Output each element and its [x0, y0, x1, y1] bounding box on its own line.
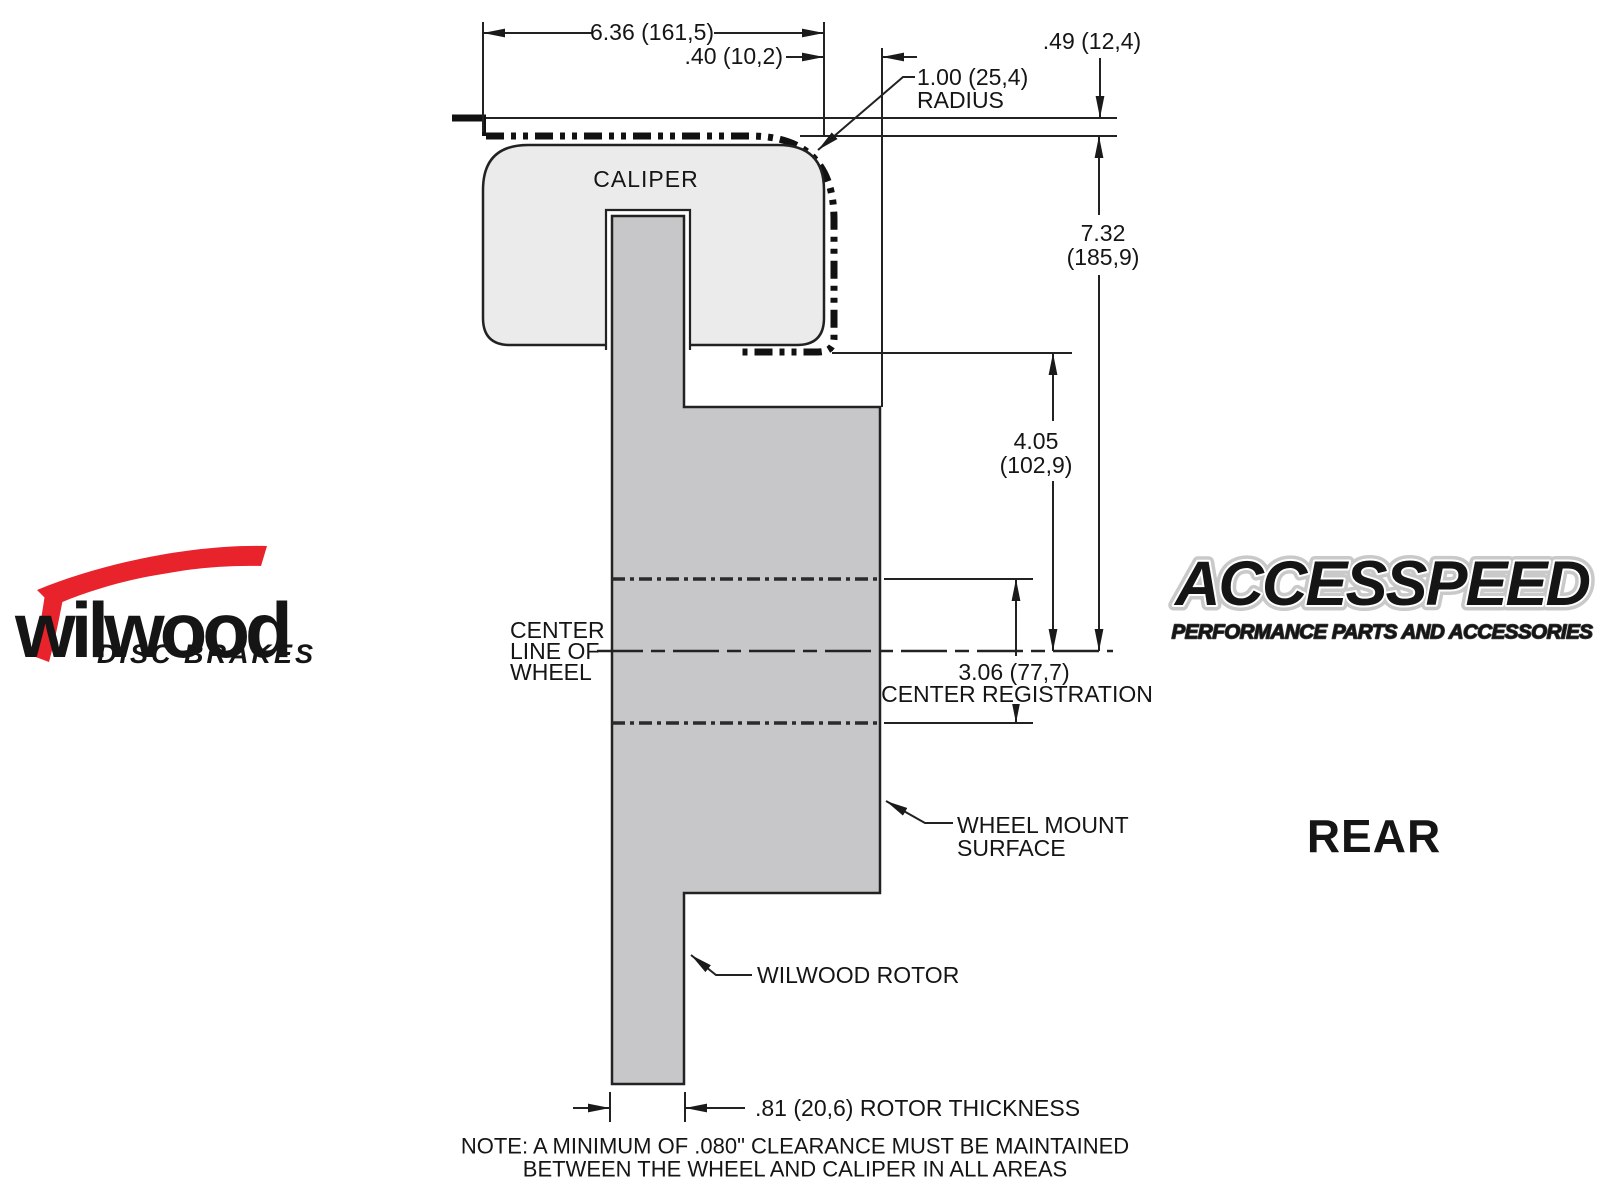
note-text-line1: NOTE: A MINIMUM OF .080" CLEARANCE MUST …: [461, 1134, 1129, 1159]
dim-depth-text-line2: (102,9): [1000, 452, 1073, 478]
diagram-canvas: CALIPER 6.36 (161,5) .40 (10,2) 1.00 (25…: [0, 0, 1600, 1200]
note-text-line2: BETWEEN THE WHEEL AND CALIPER IN ALL ARE…: [523, 1157, 1067, 1182]
accesspeed-logo: ACCESSPEED ACCESSPEED PERFORMANCE PARTS …: [1172, 549, 1594, 644]
centerline-label-line3: WHEEL: [510, 659, 592, 685]
accesspeed-tagline: PERFORMANCE PARTS AND ACCESSORIES: [1172, 621, 1594, 644]
dim-depth-text-line1: 4.05: [1014, 428, 1059, 454]
dim-height-text-line2: (185,9): [1067, 244, 1140, 270]
dim-width-text: 6.36 (161,5): [590, 19, 714, 45]
view-label: REAR: [1307, 810, 1441, 862]
dim-offset-text: .40 (10,2): [685, 43, 783, 69]
dim-registration-text-line2: CENTER REGISTRATION: [881, 681, 1153, 707]
dim-height-text-line1: 7.32: [1081, 220, 1126, 246]
brake-dimension-diagram: CALIPER 6.36 (161,5) .40 (10,2) 1.00 (25…: [0, 0, 1600, 1200]
radius-text-line2: RADIUS: [917, 87, 1004, 113]
leader-radius: [818, 77, 915, 150]
leader-wheel-mount: [886, 801, 953, 823]
leader-wilwood-rotor: [691, 955, 752, 975]
wilwood-tagline: DISC BRAKES: [97, 639, 316, 669]
accesspeed-wordmark: ACCESSPEED: [1173, 549, 1590, 619]
caliper-label: CALIPER: [593, 166, 698, 192]
dim-lip-text: .49 (12,4): [1043, 28, 1141, 54]
wilwood-logo: wilwood DISC BRAKES: [14, 546, 316, 674]
wilwood-rotor-label: WILWOOD ROTOR: [757, 962, 959, 988]
dim-rotor-thickness-text: .81 (20,6) ROTOR THICKNESS: [755, 1095, 1080, 1121]
wheel-mount-label-line2: SURFACE: [957, 835, 1066, 861]
